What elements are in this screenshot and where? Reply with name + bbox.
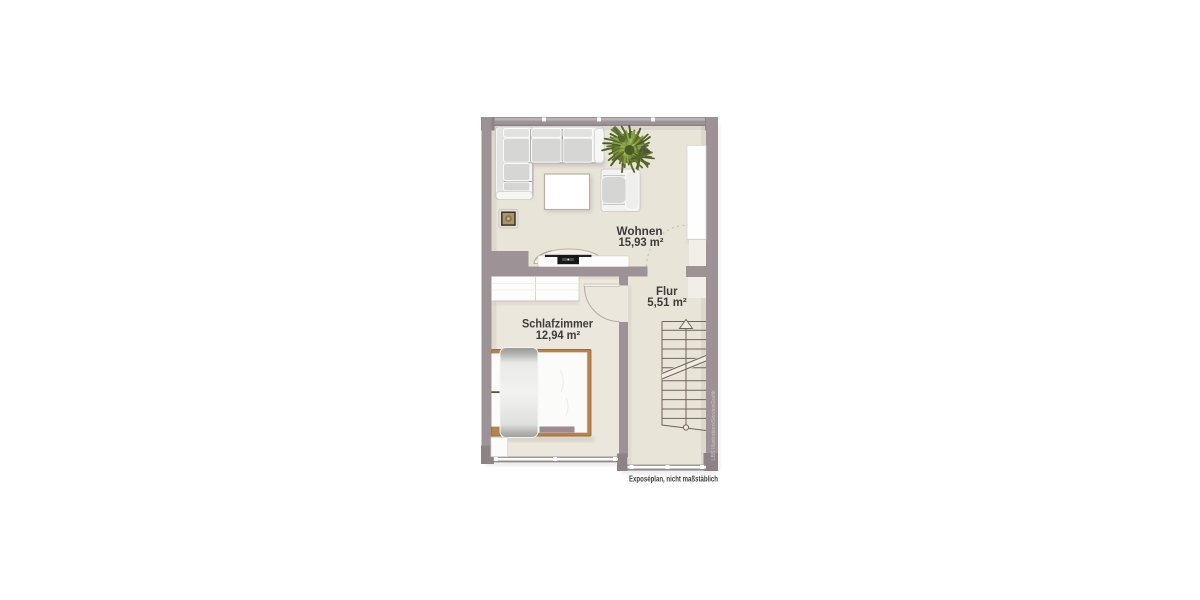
svg-text:Schlafzimmer: Schlafzimmer xyxy=(522,319,593,331)
svg-text:LBS IllustrationsServiceGrafik: LBS IllustrationsServiceGrafik xyxy=(711,390,717,460)
svg-text:Wohnen: Wohnen xyxy=(617,226,663,238)
svg-text:12,94 m²: 12,94 m² xyxy=(536,330,581,342)
svg-text:15,93 m²: 15,93 m² xyxy=(619,237,664,249)
svg-text:Exposéplan, nicht maßstäblich: Exposéplan, nicht maßstäblich xyxy=(629,475,718,484)
svg-text:5,51 m²: 5,51 m² xyxy=(647,297,687,309)
